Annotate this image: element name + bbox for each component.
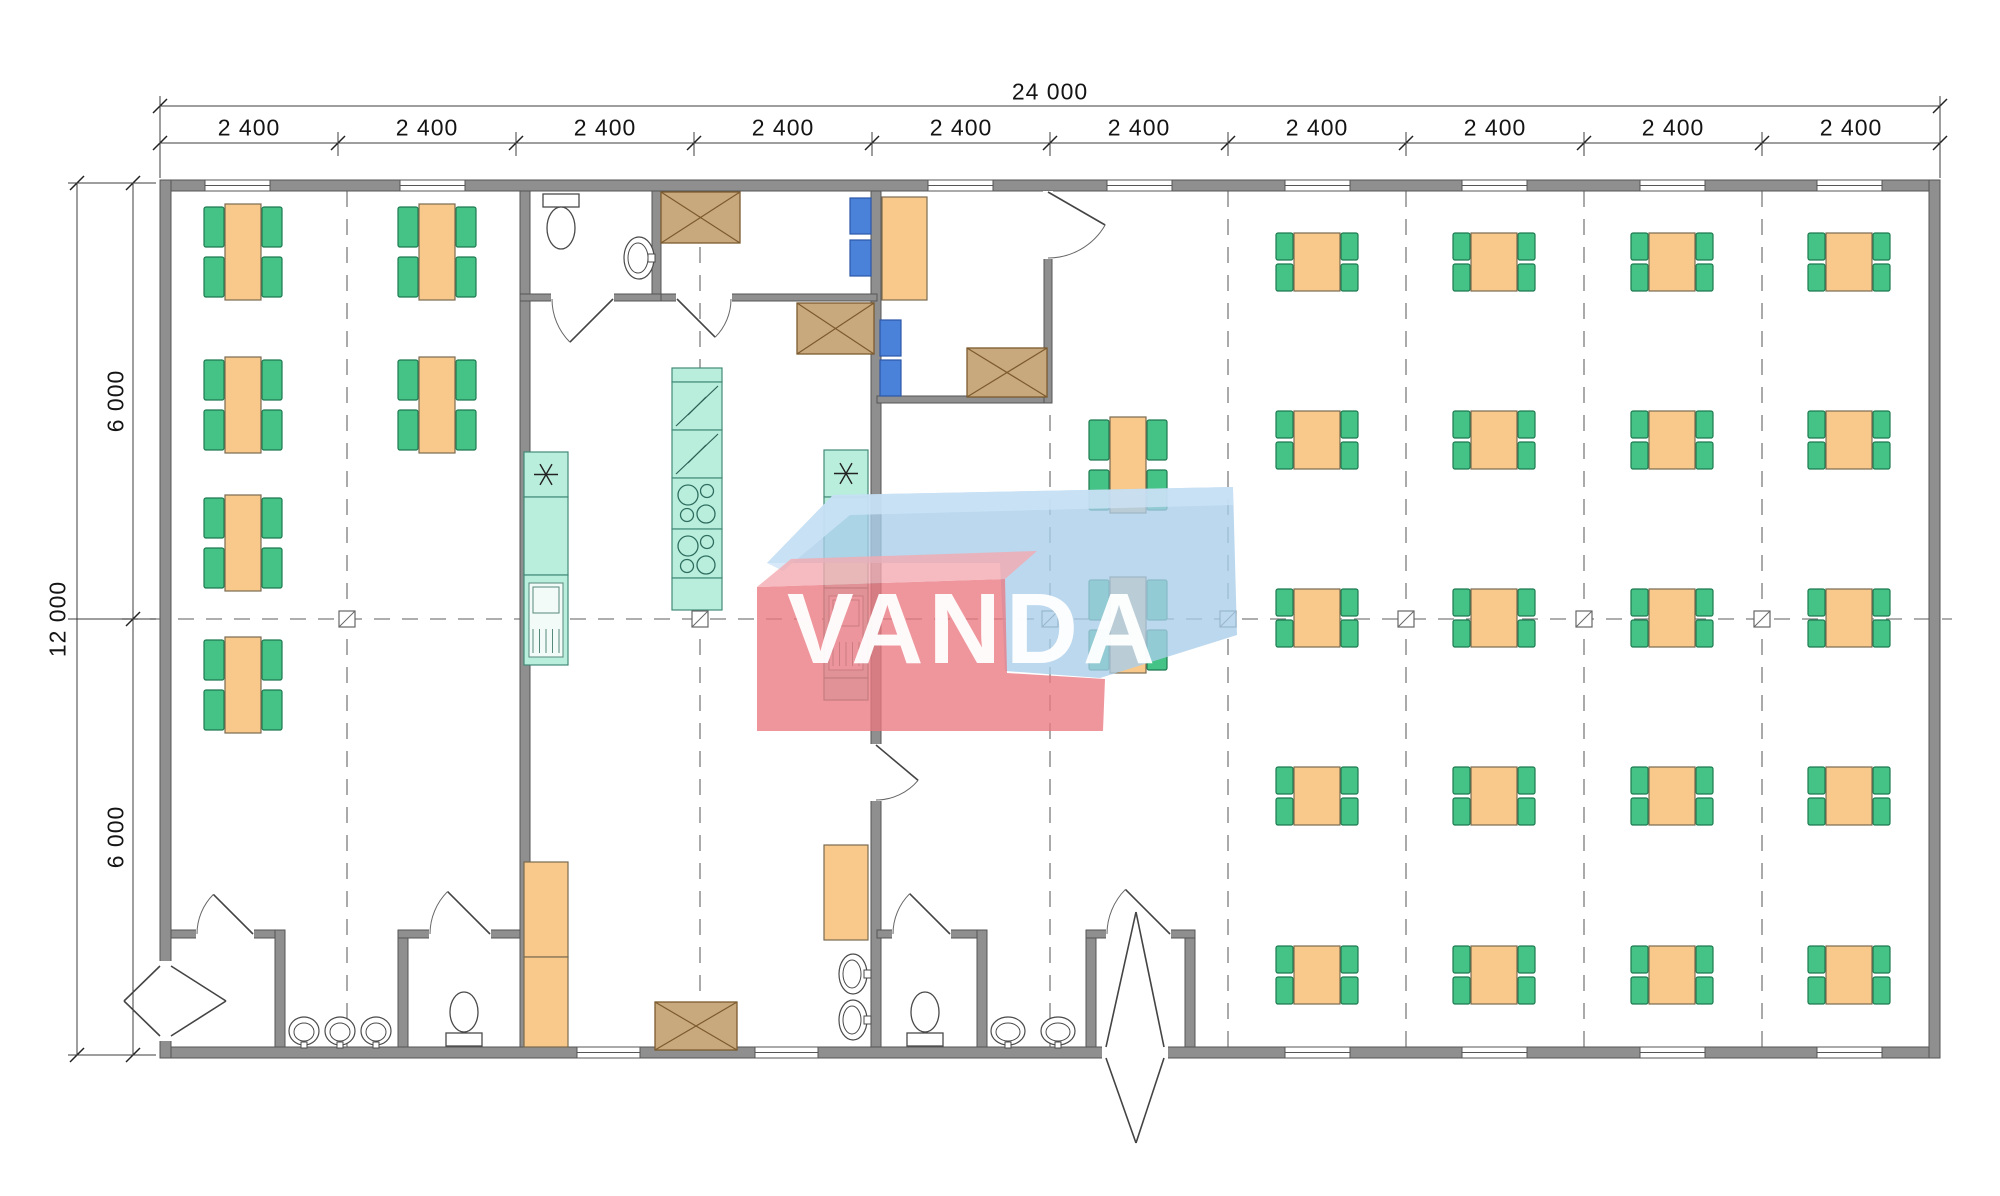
dining-chair: [204, 548, 224, 588]
toilet-bowl: [911, 992, 939, 1032]
door-swing-arc: [1107, 889, 1125, 934]
dining-chair: [1873, 620, 1890, 647]
dining-chair: [204, 257, 224, 297]
dining-chair: [1341, 620, 1358, 647]
door-opening: [870, 744, 882, 801]
door-swing-arc: [893, 894, 910, 934]
tall-cabinet: [524, 957, 568, 1047]
dining-chair: [1873, 798, 1890, 825]
dining-table: [1294, 589, 1340, 647]
dining-chair: [1808, 264, 1825, 291]
dimension-label-bay: 2 400: [574, 115, 637, 142]
dining-table: [1826, 767, 1872, 825]
dining-table: [1471, 233, 1517, 291]
dining-chair: [1276, 411, 1293, 438]
door-leaf: [1106, 1058, 1136, 1143]
dining-chair: [398, 207, 418, 247]
dining-table: [1110, 577, 1146, 673]
basin-tap: [864, 970, 871, 978]
door-leaf: [570, 299, 613, 342]
dining-chair: [204, 410, 224, 450]
dining-chair: [1873, 977, 1890, 1004]
dining-table: [1471, 767, 1517, 825]
kitchen-counter: [672, 578, 722, 610]
dimension-label-total-height: 12 000: [45, 581, 72, 657]
office-chair: [880, 360, 901, 396]
dining-chair: [1808, 411, 1825, 438]
kitchen-counter: [672, 368, 722, 382]
floor-plan-drawing: [0, 0, 2000, 1196]
dining-chair: [1276, 798, 1293, 825]
door-opening: [551, 293, 614, 302]
dining-chair: [1631, 264, 1648, 291]
tall-cabinet: [824, 845, 868, 940]
dimension-label-bay: 2 400: [1642, 115, 1705, 142]
office-desk: [882, 197, 927, 300]
dining-chair: [456, 257, 476, 297]
dining-chair: [1341, 442, 1358, 469]
dining-chair: [1631, 946, 1648, 973]
dining-chair: [262, 690, 282, 730]
wall: [275, 930, 285, 1047]
dining-chair: [1089, 470, 1109, 510]
dining-table: [1826, 411, 1872, 469]
dining-chair: [1696, 977, 1713, 1004]
door-leaf: [910, 894, 950, 934]
stove-unit: [672, 529, 722, 578]
wall: [1185, 930, 1195, 1047]
dining-chair: [1808, 620, 1825, 647]
dining-table: [225, 357, 261, 453]
dining-chair: [204, 498, 224, 538]
dining-chair: [1808, 798, 1825, 825]
dining-chair: [456, 360, 476, 400]
toilet-tank: [446, 1033, 482, 1046]
dining-chair: [1631, 798, 1648, 825]
basin-tap: [337, 1042, 343, 1048]
door-swing-arc: [197, 894, 213, 934]
dining-chair: [1453, 264, 1470, 291]
dining-chair: [1341, 946, 1358, 973]
wall: [160, 180, 171, 1058]
dimension-label-bay: 2 400: [218, 115, 281, 142]
basin-tap: [301, 1042, 307, 1048]
dining-table: [1471, 589, 1517, 647]
dining-chair: [1147, 630, 1167, 670]
dining-chair: [262, 410, 282, 450]
dining-chair: [1873, 442, 1890, 469]
dining-chair: [1518, 798, 1535, 825]
office-chair: [850, 198, 871, 234]
door-opening: [196, 929, 254, 939]
dining-chair: [1147, 420, 1167, 460]
door-swing-arc: [430, 892, 448, 934]
dining-chair: [1089, 630, 1109, 670]
dining-chair: [398, 257, 418, 297]
dining-chair: [1873, 767, 1890, 794]
dining-chair: [1453, 442, 1470, 469]
dining-chair: [1453, 798, 1470, 825]
door-leaf: [677, 299, 715, 337]
door-leaf: [448, 892, 490, 934]
door-leaf: [876, 745, 918, 780]
dining-chair: [1453, 946, 1470, 973]
dining-chair: [1696, 589, 1713, 616]
dining-chair: [1696, 620, 1713, 647]
dining-table: [1649, 233, 1695, 291]
dining-table: [1110, 417, 1146, 513]
door-leaf: [171, 1001, 226, 1036]
dimension-label-bay: 2 400: [1286, 115, 1349, 142]
dining-chair: [262, 498, 282, 538]
dining-chair: [1518, 977, 1535, 1004]
door-leaf: [1136, 1058, 1164, 1143]
dining-table: [1471, 411, 1517, 469]
dining-table: [419, 204, 455, 300]
basin-tap: [373, 1042, 379, 1048]
dining-chair: [1341, 264, 1358, 291]
tall-cabinet: [524, 862, 568, 957]
dining-chair: [1808, 977, 1825, 1004]
dining-table: [1826, 946, 1872, 1004]
dining-chair: [204, 690, 224, 730]
door-opening: [892, 929, 951, 939]
dining-table: [1294, 767, 1340, 825]
door-leaf: [171, 966, 226, 1001]
dining-chair: [1276, 589, 1293, 616]
dining-chair: [1631, 977, 1648, 1004]
dining-table: [1294, 233, 1340, 291]
dining-chair: [1276, 233, 1293, 260]
dining-table: [1471, 946, 1517, 1004]
dining-chair: [1276, 620, 1293, 647]
dining-chair: [1518, 233, 1535, 260]
dining-chair: [262, 207, 282, 247]
dining-table: [1294, 411, 1340, 469]
dining-chair: [1453, 233, 1470, 260]
door-opening: [1043, 191, 1053, 259]
dimension-label-bay: 2 400: [930, 115, 993, 142]
dining-chair: [262, 640, 282, 680]
door-opening: [159, 961, 172, 1041]
toilet-bowl: [450, 992, 478, 1032]
dining-chair: [1873, 233, 1890, 260]
dining-chair: [1341, 798, 1358, 825]
dining-chair: [1518, 442, 1535, 469]
dining-chair: [1341, 411, 1358, 438]
office-chair: [880, 320, 901, 356]
dining-chair: [1341, 767, 1358, 794]
toilet-bowl: [547, 207, 575, 249]
dining-table: [1294, 946, 1340, 1004]
dining-chair: [1808, 946, 1825, 973]
dining-chair: [1631, 589, 1648, 616]
dining-chair: [1696, 767, 1713, 794]
wall: [977, 930, 987, 1047]
wall: [398, 930, 408, 1047]
door-swing-arc: [876, 780, 918, 800]
dining-chair: [1808, 442, 1825, 469]
door-opening: [1102, 1046, 1168, 1059]
door-swing-arc: [552, 299, 570, 342]
dining-table: [225, 637, 261, 733]
floor-plan-canvas: 24 0002 4002 4002 4002 4002 4002 4002 40…: [0, 0, 2000, 1196]
dining-chair: [1518, 767, 1535, 794]
dining-table: [225, 204, 261, 300]
dimension-label-total-width: 24 000: [1012, 79, 1088, 106]
toilet-tank: [543, 194, 579, 207]
dining-chair: [204, 207, 224, 247]
dining-chair: [1341, 589, 1358, 616]
dining-chair: [262, 360, 282, 400]
door-leaf: [124, 1001, 160, 1036]
dimension-label-bay: 2 400: [396, 115, 459, 142]
door-leaf: [213, 894, 253, 934]
dimension-label-bay: 2 400: [1108, 115, 1171, 142]
dimension-label-half-height: 6 000: [103, 370, 130, 433]
basin-tap: [648, 254, 655, 262]
kitchen-counter: [824, 497, 868, 588]
dining-chair: [1631, 767, 1648, 794]
stove-unit: [672, 478, 722, 529]
dining-table: [1649, 767, 1695, 825]
dining-chair: [1873, 411, 1890, 438]
dining-chair: [1696, 264, 1713, 291]
dining-chair: [1696, 411, 1713, 438]
dining-chair: [1089, 420, 1109, 460]
wall: [652, 191, 661, 301]
dining-chair: [1453, 767, 1470, 794]
dining-chair: [1089, 580, 1109, 620]
dining-table: [1826, 589, 1872, 647]
wall: [1929, 180, 1940, 1058]
dining-chair: [1453, 589, 1470, 616]
kitchen-counter: [824, 678, 868, 700]
dining-chair: [1341, 233, 1358, 260]
dining-table: [1826, 233, 1872, 291]
basin-tap: [864, 1016, 871, 1024]
dining-chair: [1147, 470, 1167, 510]
dimension-label-bay: 2 400: [1820, 115, 1883, 142]
dining-chair: [1518, 264, 1535, 291]
door-leaf: [124, 966, 160, 1001]
dimension-label-bay: 2 400: [752, 115, 815, 142]
basin-tap: [1005, 1042, 1011, 1048]
dining-chair: [1873, 264, 1890, 291]
dimension-label-bay: 2 400: [1464, 115, 1527, 142]
dining-chair: [1873, 589, 1890, 616]
dining-chair: [1276, 767, 1293, 794]
dining-table: [1649, 589, 1695, 647]
dining-table: [225, 495, 261, 591]
dining-chair: [1453, 977, 1470, 1004]
dining-table: [1649, 946, 1695, 1004]
door-opening: [429, 929, 491, 939]
dining-chair: [1276, 946, 1293, 973]
dining-chair: [1873, 946, 1890, 973]
dining-chair: [1276, 264, 1293, 291]
dining-chair: [1518, 620, 1535, 647]
dining-chair: [1696, 798, 1713, 825]
dining-chair: [1631, 411, 1648, 438]
dining-chair: [1453, 411, 1470, 438]
dining-chair: [456, 410, 476, 450]
dining-chair: [1808, 589, 1825, 616]
dining-chair: [1696, 233, 1713, 260]
dining-chair: [1518, 589, 1535, 616]
dining-chair: [1631, 233, 1648, 260]
door-swing-arc: [715, 299, 731, 337]
dining-chair: [204, 360, 224, 400]
dining-chair: [1631, 620, 1648, 647]
dining-chair: [1696, 946, 1713, 973]
toilet-tank: [907, 1033, 943, 1046]
basin-tap: [1055, 1042, 1061, 1048]
dining-table: [1649, 411, 1695, 469]
dining-chair: [1696, 442, 1713, 469]
dining-chair: [1147, 580, 1167, 620]
dining-chair: [1518, 411, 1535, 438]
dining-chair: [1341, 977, 1358, 1004]
kitchen-counter: [524, 497, 568, 575]
dining-chair: [398, 360, 418, 400]
dining-chair: [1631, 442, 1648, 469]
dining-chair: [262, 548, 282, 588]
dining-chair: [1276, 977, 1293, 1004]
dining-chair: [1808, 233, 1825, 260]
door-leaf: [1048, 192, 1105, 225]
wall: [1086, 930, 1096, 1047]
dining-chair: [456, 207, 476, 247]
office-chair: [850, 240, 871, 276]
door-opening: [676, 293, 732, 302]
door-opening: [1106, 929, 1171, 939]
dining-chair: [1518, 946, 1535, 973]
dining-chair: [204, 640, 224, 680]
dining-chair: [262, 257, 282, 297]
door-swing-arc: [1048, 225, 1105, 258]
dining-chair: [1808, 767, 1825, 794]
dimension-label-half-height: 6 000: [103, 806, 130, 869]
dining-chair: [398, 410, 418, 450]
dining-chair: [1453, 620, 1470, 647]
dining-table: [419, 357, 455, 453]
dining-chair: [1276, 442, 1293, 469]
